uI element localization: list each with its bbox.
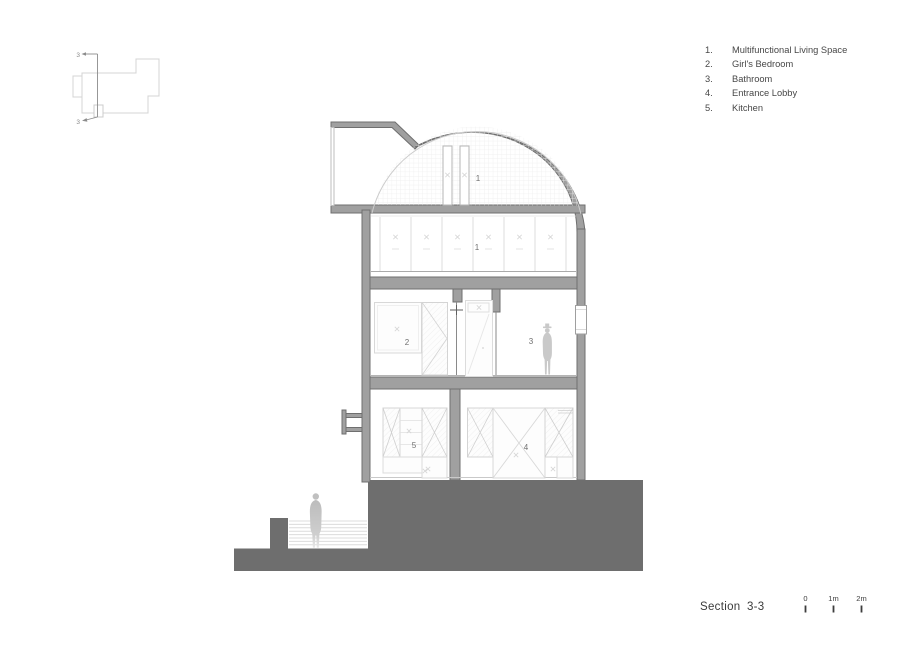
person-bathroom — [543, 324, 552, 375]
section-marker-top: 3 — [76, 52, 80, 59]
legend: 1. Multifunctional Living Space 2. Girl'… — [705, 43, 847, 115]
legend-item-number: 3. — [705, 72, 732, 86]
room-label-lobby: 4 — [524, 443, 529, 452]
canopy-rail-top — [346, 414, 362, 418]
person-hat-crown — [545, 324, 549, 327]
sheet-title: Section 3-3 — [700, 601, 764, 613]
sparkle-mark — [548, 235, 552, 239]
legend-item: 2. Girl's Bedroom — [705, 57, 847, 71]
key-plan-left-wing — [73, 76, 82, 97]
scale-bar: 0 1m 2m — [803, 594, 866, 613]
kitchen-cabinet-base — [422, 457, 447, 478]
legend-item-number: 5. — [705, 101, 732, 115]
room-label-kitchen: 5 — [412, 441, 417, 450]
legend-item-label: Entrance Lobby — [732, 86, 797, 100]
mid-floor-slab — [362, 377, 585, 389]
person-body — [543, 333, 552, 375]
sparkle-mark — [551, 467, 555, 471]
person-outdoor — [310, 493, 322, 548]
sheet: 3 3 — [0, 0, 915, 647]
middle-floor: 2 3 — [370, 301, 587, 377]
legend-item-label: Kitchen — [732, 101, 763, 115]
kitchen-counter — [383, 457, 422, 473]
legend-item: 3. Bathroom — [705, 72, 847, 86]
wardrobe — [422, 303, 448, 376]
cabinet-level: 1 — [371, 216, 576, 272]
person-head — [313, 493, 319, 499]
hanging-wall-stub-right — [492, 289, 500, 312]
sparkle-mark — [517, 235, 521, 239]
legend-item-label: Multifunctional Living Space — [732, 43, 847, 57]
section-cut-tick-bottom — [86, 117, 98, 120]
ground-floor: 5 4 — [370, 408, 577, 478]
person-body — [310, 500, 322, 548]
dome-interior: 1 — [372, 127, 581, 214]
section-arrow-top-icon — [82, 52, 87, 56]
sparkle-mark — [455, 235, 459, 239]
scale-tick-label-2m: 2m — [856, 594, 866, 603]
room-label-bathroom: 3 — [529, 337, 534, 346]
exterior-stairs — [289, 521, 367, 545]
central-wall — [450, 389, 460, 480]
door-pivot-icon — [450, 305, 463, 315]
hanging-wall-stub-left — [453, 289, 462, 302]
scale-tick-label-1m: 1m — [828, 594, 838, 603]
ground-profile — [234, 480, 643, 571]
flat-roof-slab — [331, 122, 419, 149]
sparkle-mark — [486, 235, 490, 239]
sparkle-mark — [393, 235, 397, 239]
legend-item-number: 4. — [705, 86, 732, 100]
section-arrow-bottom-icon — [82, 118, 87, 122]
scale-tick-label-0: 0 — [803, 594, 807, 603]
projection-left-wall — [331, 128, 334, 206]
sparkle-mark — [424, 235, 428, 239]
upper-floor-slab — [362, 277, 585, 289]
person-head — [545, 328, 550, 333]
key-plan: 3 3 — [73, 52, 159, 126]
right-wall — [577, 229, 585, 480]
canopy-plate — [342, 410, 346, 434]
legend-item: 1. Multifunctional Living Space — [705, 43, 847, 57]
canopy-rail-bottom — [346, 428, 362, 432]
person-hat-brim — [543, 327, 552, 329]
left-wall — [362, 210, 370, 482]
terrain — [234, 480, 643, 571]
bathroom-window — [576, 306, 587, 335]
closet-knob — [482, 347, 484, 349]
room-label-bedroom: 2 — [405, 338, 410, 347]
cabinet-dividers — [380, 217, 566, 271]
key-plan-entry-box — [94, 105, 103, 117]
legend-item: 5. Kitchen — [705, 101, 847, 115]
legend-item-label: Bathroom — [732, 72, 772, 86]
section-marker-bottom: 3 — [76, 119, 80, 126]
room-label-living-cabinet: 1 — [475, 243, 480, 252]
room-label-living-dome: 1 — [476, 174, 481, 183]
legend-item: 4. Entrance Lobby — [705, 86, 847, 100]
legend-item-number: 1. — [705, 43, 732, 57]
lobby-bench-box — [557, 457, 573, 478]
scale-tick-marks — [806, 606, 862, 613]
legend-item-label: Girl's Bedroom — [732, 57, 793, 71]
legend-item-number: 2. — [705, 57, 732, 71]
